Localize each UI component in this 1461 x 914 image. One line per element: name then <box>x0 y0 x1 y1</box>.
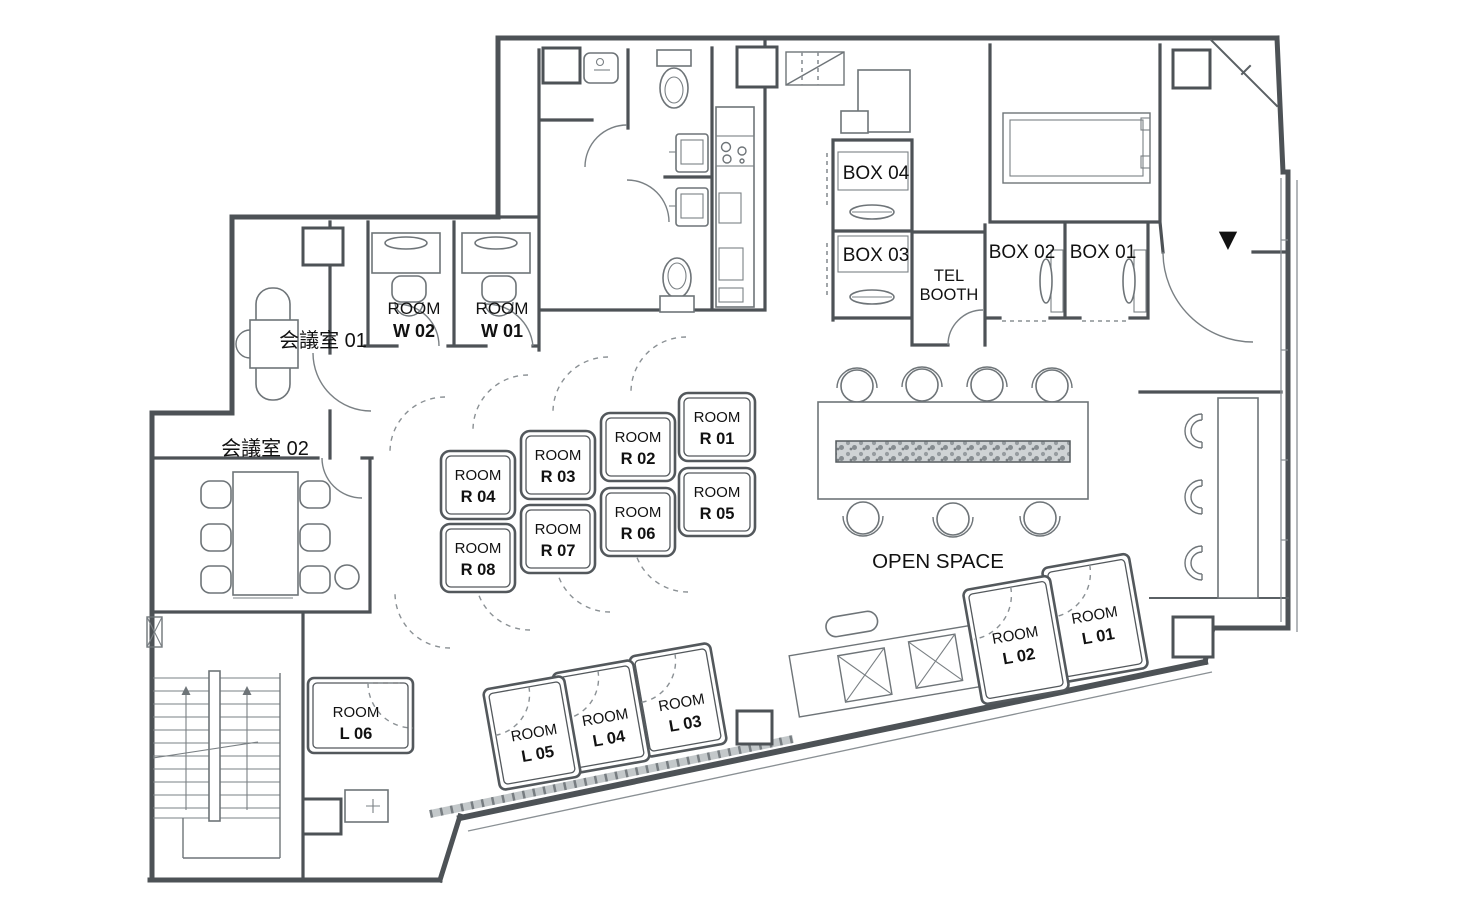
room-label: ROOM <box>476 299 529 318</box>
monitor-icon <box>475 237 517 249</box>
room-booth-l05: ROOM L 05 <box>483 676 581 791</box>
equipment-room <box>1003 113 1150 183</box>
room-id: R 01 <box>700 430 735 448</box>
tel-booth-label-line2: BOOTH <box>920 286 979 304</box>
room-id: R 07 <box>541 542 576 560</box>
floor-plan-canvas: ROOM R 01 ROOM R 02 ROOM R 03 ROOM R 04 … <box>0 0 1461 914</box>
toilet-icon <box>663 258 691 298</box>
room-label: ROOM <box>694 409 741 426</box>
small-table <box>345 790 388 822</box>
open-space-label: OPEN SPACE <box>872 550 1004 573</box>
room-label: ROOM <box>694 484 741 501</box>
room-label: ROOM <box>388 299 441 318</box>
toilet-area <box>584 50 708 312</box>
chair-icon <box>1123 259 1135 303</box>
planter <box>836 441 1070 462</box>
meeting-room-01-label: 会議室 01 <box>279 329 367 352</box>
room-booth-r04: ROOM R 04 <box>441 451 515 519</box>
room-id: R 02 <box>621 450 656 468</box>
window-counter <box>1185 398 1258 598</box>
elevators <box>784 595 983 717</box>
monitor-icon <box>385 237 427 249</box>
box-01-label: BOX 01 <box>1070 242 1137 263</box>
room-booth-r03: ROOM R 03 <box>521 431 595 499</box>
storage-room <box>786 52 910 133</box>
meeting-room-02-label: 会議室 02 <box>221 437 309 460</box>
room-id: R 06 <box>621 525 656 543</box>
box-03-label: BOX 03 <box>843 245 910 266</box>
room-label: ROOM <box>455 540 502 557</box>
entrance-marker-icon: ▼ <box>1219 225 1238 253</box>
room-booth-r05: ROOM R 05 <box>679 468 755 536</box>
chair-icon <box>1040 259 1052 303</box>
room-booth-l02: ROOM L 02 <box>963 575 1070 705</box>
staircase <box>147 617 280 858</box>
room-id: R 05 <box>700 505 735 523</box>
tel-booth-label-line1: TEL <box>934 267 964 285</box>
toilet-tank <box>657 50 691 66</box>
box-04-label: BOX 04 <box>843 163 910 184</box>
room-id: R 08 <box>461 561 496 579</box>
room-booth-r01: ROOM R 01 <box>679 393 755 461</box>
room-id: R 04 <box>461 488 497 506</box>
room-id: R 03 <box>541 468 576 486</box>
sink-icon <box>584 53 618 83</box>
room-label: ROOM <box>615 504 662 521</box>
room-label: ROOM <box>535 521 582 538</box>
room-label: ROOM <box>333 704 380 721</box>
room-label: ROOM <box>455 467 502 484</box>
meeting-room-02-furniture <box>201 472 359 598</box>
room-id: W 02 <box>393 321 435 341</box>
room-booth-r07: ROOM R 07 <box>521 505 595 573</box>
room-booth-l06: ROOM L 06 <box>308 678 413 753</box>
floor-plan-page: ROOM R 01 ROOM R 02 ROOM R 03 ROOM R 04 … <box>0 0 1461 914</box>
room-label: ROOM <box>535 447 582 464</box>
room-booth-r08: ROOM R 08 <box>441 524 515 592</box>
open-space-table <box>818 367 1088 537</box>
room-label: ROOM <box>615 429 662 446</box>
room-booth-r06: ROOM R 06 <box>601 488 675 556</box>
room-booth-r02: ROOM R 02 <box>601 413 675 481</box>
room-id: W 01 <box>481 321 523 341</box>
box-02-label: BOX 02 <box>989 242 1056 263</box>
stool-icon <box>1185 414 1202 580</box>
bench <box>824 610 879 638</box>
toilet-icon <box>660 68 688 108</box>
kitchen <box>716 107 754 307</box>
room-id: L 06 <box>340 725 373 743</box>
